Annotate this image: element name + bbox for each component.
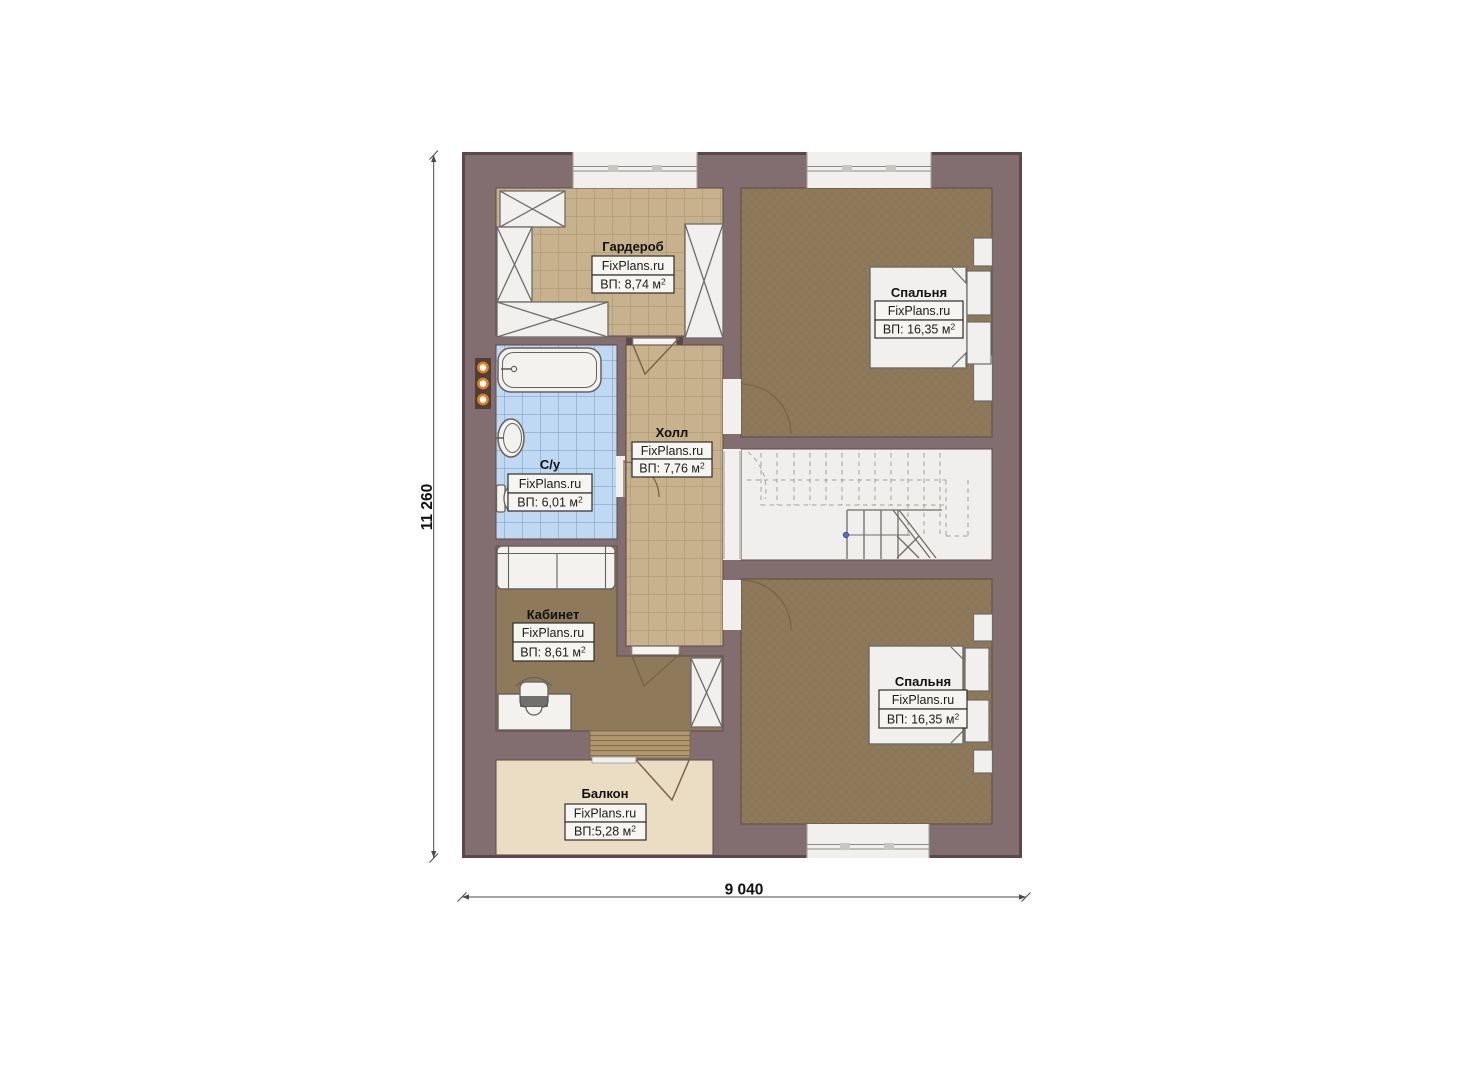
svg-text:ВП:5,28 м2: ВП:5,28 м2 xyxy=(574,824,636,839)
svg-text:Холл: Холл xyxy=(656,425,689,440)
svg-text:Балкон: Балкон xyxy=(582,786,629,801)
svg-text:Гардероб: Гардероб xyxy=(602,239,663,254)
svg-text:Спальня: Спальня xyxy=(895,674,951,689)
svg-text:FixPlans.ru: FixPlans.ru xyxy=(641,444,704,458)
svg-text:FixPlans.ru: FixPlans.ru xyxy=(519,477,582,491)
svg-text:FixPlans.ru: FixPlans.ru xyxy=(888,304,951,318)
svg-text:С/у: С/у xyxy=(540,457,561,472)
svg-text:ВП: 8,74 м2: ВП: 8,74 м2 xyxy=(600,277,666,292)
svg-text:ВП: 7,76 м2: ВП: 7,76 м2 xyxy=(639,461,705,476)
svg-text:ВП: 8,61 м2: ВП: 8,61 м2 xyxy=(520,645,586,660)
svg-text:11 260: 11 260 xyxy=(419,484,436,531)
svg-text:FixPlans.ru: FixPlans.ru xyxy=(574,807,637,821)
svg-text:FixPlans.ru: FixPlans.ru xyxy=(602,259,665,273)
svg-text:ВП: 6,01 м2: ВП: 6,01 м2 xyxy=(517,495,583,510)
svg-text:FixPlans.ru: FixPlans.ru xyxy=(892,693,955,707)
svg-text:ВП: 16,35 м2: ВП: 16,35 м2 xyxy=(887,712,960,727)
svg-text:Спальня: Спальня xyxy=(891,285,947,300)
svg-text:9 040: 9 040 xyxy=(725,882,764,899)
svg-text:ВП: 16,35 м2: ВП: 16,35 м2 xyxy=(883,322,956,337)
svg-text:Кабинет: Кабинет xyxy=(527,607,580,622)
svg-text:FixPlans.ru: FixPlans.ru xyxy=(522,626,585,640)
